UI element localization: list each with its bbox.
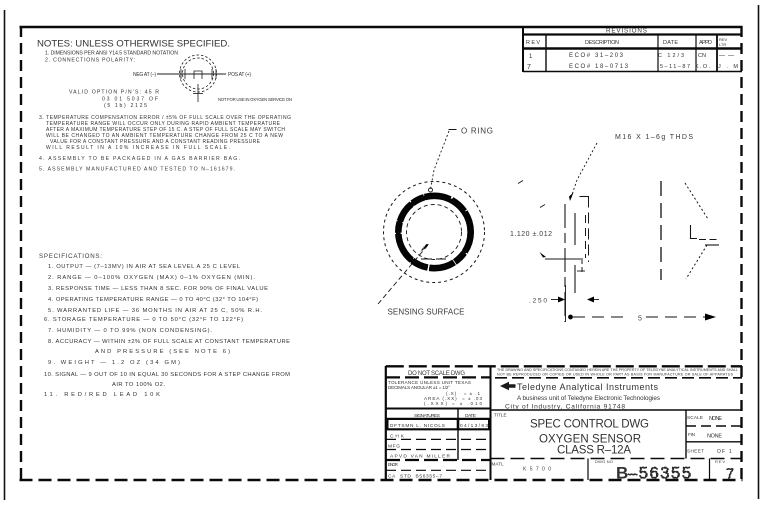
svg-text:7: 7 [726, 467, 734, 483]
svg-text:4. ASSEMBLY TO BE PACKAGED IN: 4. ASSEMBLY TO BE PACKAGED IN A GAS BARR… [39, 156, 240, 162]
svg-text:City of Industry, California 9: City of Industry, California 91748 [505, 404, 625, 411]
svg-text:DFTSMN L. NICOLS: DFTSMN L. NICOLS [390, 423, 445, 429]
svg-text:CN: CN [698, 53, 706, 59]
svg-text:5. WARRANTED LIFE — 36 MONTHS: 5. WARRANTED LIFE — 36 MONTHS IN AIR AT … [48, 308, 262, 314]
svg-text:DATE: DATE [465, 413, 476, 419]
svg-text:ENGR: ENGR [388, 462, 399, 468]
svg-text:REV: REV [526, 40, 540, 46]
svg-text:DECIMALS ANGULAR ±1 = 1/2°: DECIMALS ANGULAR ±1 = 1/2° [388, 385, 450, 390]
svg-text:OF: OF [717, 449, 725, 455]
svg-text:LTR: LTR [719, 42, 726, 47]
svg-text:5: 5 [638, 316, 642, 323]
svg-text:SPECIFICATIONS:: SPECIFICATIONS: [39, 253, 102, 260]
svg-text:NOTES: UNLESS OTHERWISE SPECIF: NOTES: UNLESS OTHERWISE SPECIFIED. [37, 39, 230, 50]
svg-text:3. RESPONSE TIME — LESS THAN 8: 3. RESPONSE TIME — LESS THAN 8 SEC. FOR … [48, 286, 268, 292]
svg-text:.250: .250 [529, 298, 547, 305]
svg-text:MATL: MATL [492, 462, 504, 467]
svg-text:A business unit of Teledyne El: A business unit of Teledyne Electronic T… [517, 395, 660, 402]
svg-text:6. STORAGE TEMPERATURE — 0 TO: 6. STORAGE TEMPERATURE — 0 TO 50°C (32°F… [44, 317, 243, 323]
svg-text:SCALE: SCALE [687, 415, 703, 420]
svg-text:APPD: APPD [699, 40, 712, 46]
svg-text:NONE: NONE [709, 416, 722, 422]
svg-text:CLASS R–12A: CLASS R–12A [557, 445, 631, 457]
svg-text:WILL RESULT IN A 10% INCREASE: WILL RESULT IN A 10% INCREASE IN FULL SC… [46, 145, 230, 151]
svg-text:DWG NO: DWG NO [595, 459, 613, 464]
svg-text:B: B [616, 464, 628, 483]
svg-text:7. HUMIDITY — 0 TO 99% (NON CO: 7. HUMIDITY — 0 TO 99% (NON CONDENSING). [48, 328, 212, 334]
svg-text:M16 X 1–6g THDS: M16 X 1–6g THDS [615, 134, 693, 141]
svg-text:VALID OPTION P/N’S: 45 R: VALID OPTION P/N’S: 45 R [69, 90, 159, 96]
svg-text:DO NOT SCALE DWG: DO NOT SCALE DWG [408, 371, 465, 377]
svg-text:AIR TO 100% O2.: AIR TO 100% O2. [112, 382, 165, 388]
svg-text:Teledyne Analytical Instrument: Teledyne Analytical Instruments [517, 382, 659, 392]
svg-text:APVD VAN MILLER: APVD VAN MILLER [390, 454, 451, 460]
svg-text:SIGNATURES: SIGNATURES [414, 413, 440, 419]
svg-text:K.O.: K.O. [695, 64, 710, 70]
svg-text:DATE: DATE [663, 40, 678, 46]
svg-text:NOT FOR USE IN OXYGEN SERVICE: NOT FOR USE IN OXYGEN SERVICE ON [218, 97, 292, 102]
svg-text:2. CONNECTIONS POLARITY:: 2. CONNECTIONS POLARITY: [45, 58, 135, 64]
svg-text:7: 7 [527, 64, 531, 71]
svg-text:SPEC CONTROL DWG: SPEC CONTROL DWG [530, 419, 649, 431]
svg-text:NEG AT (–): NEG AT (–) [133, 72, 156, 78]
svg-text:CA STD B56355–7: CA STD B56355–7 [388, 474, 442, 480]
svg-text:FIN: FIN [688, 432, 695, 437]
svg-text:THE DRAWING AND SPECIFICATIONS: THE DRAWING AND SPECIFICATIONS CONTAINED… [497, 368, 738, 372]
svg-text:NOT BE REPRODUCED OR COPIED OR: NOT BE REPRODUCED OR COPIED OR USED IN W… [497, 373, 734, 377]
svg-text:NONE: NONE [707, 434, 722, 440]
svg-text:SENSING SURFACE: SENSING SURFACE [388, 308, 465, 317]
svg-text:1. DIMENSIONS PER ANSI Y14.5 S: 1. DIMENSIONS PER ANSI Y14.5 STANDARD NO… [45, 51, 178, 57]
svg-text:MFG: MFG [388, 444, 400, 450]
svg-text:8. ACCURACY — WITHIN ±2% OF FU: 8. ACCURACY — WITHIN ±2% OF FULL SCALE A… [48, 339, 290, 345]
svg-text:POS AT (+): POS AT (+) [228, 72, 251, 78]
svg-text:4. OPERATING TEMPERATURE RANGE: 4. OPERATING TEMPERATURE RANGE — 0 TO 40… [48, 297, 258, 303]
svg-text:03 01 5037 OF: 03 01 5037 OF [102, 97, 158, 103]
svg-text:9. WEIGHT — 1.2 OZ (34 GM): 9. WEIGHT — 1.2 OZ (34 GM) [48, 360, 180, 366]
svg-text:1. OUTPUT — (7–13MV) IN AIR AT: 1. OUTPUT — (7–13MV) IN AIR AT SEA LEVEL… [48, 264, 241, 270]
svg-text:CHK: CHK [390, 434, 405, 440]
svg-text:5. ASSEMBLY MANUFACTURED AND T: 5. ASSEMBLY MANUFACTURED AND TESTED TO N… [39, 167, 235, 173]
svg-text:1.120 ±.012: 1.120 ±.012 [510, 231, 552, 238]
svg-text:ECO# 31–203: ECO# 31–203 [569, 53, 624, 59]
svg-text:DESCRIPTION: DESCRIPTION [585, 40, 619, 46]
svg-text:O RING: O RING [461, 127, 493, 136]
svg-text:10. SIGNAL — 9 OUT OF 10 IN EQ: 10. SIGNAL — 9 OUT OF 10 IN EQUAL 30 SEC… [44, 372, 290, 378]
svg-text:TITLE: TITLE [494, 413, 507, 418]
svg-text:2. RANGE — 0–100% OXYGEN (MAX): 2. RANGE — 0–100% OXYGEN (MAX) 0–1% OXYG… [48, 275, 255, 281]
svg-text:SHEET: SHEET [687, 449, 704, 454]
svg-text:REVISIONS: REVISIONS [606, 28, 647, 35]
svg-text:REV: REV [715, 459, 725, 464]
svg-text:1: 1 [729, 449, 732, 455]
